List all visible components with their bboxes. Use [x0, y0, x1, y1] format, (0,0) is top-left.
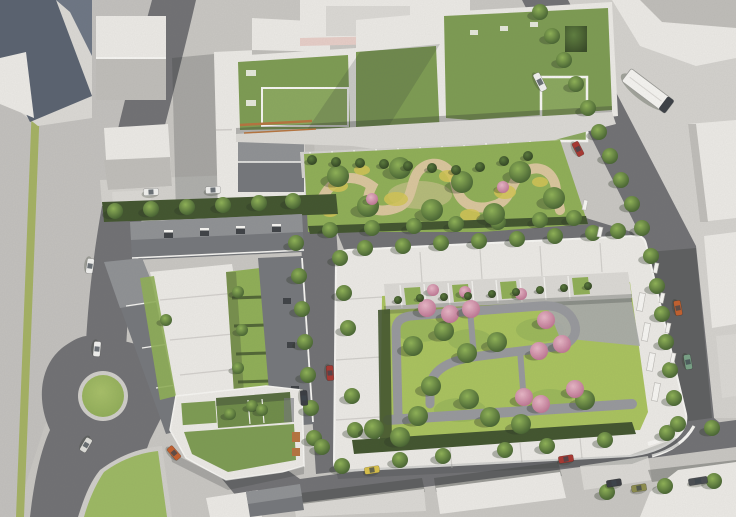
- aerial-masterplan-render: [0, 0, 736, 517]
- grain-overlay: [0, 0, 736, 517]
